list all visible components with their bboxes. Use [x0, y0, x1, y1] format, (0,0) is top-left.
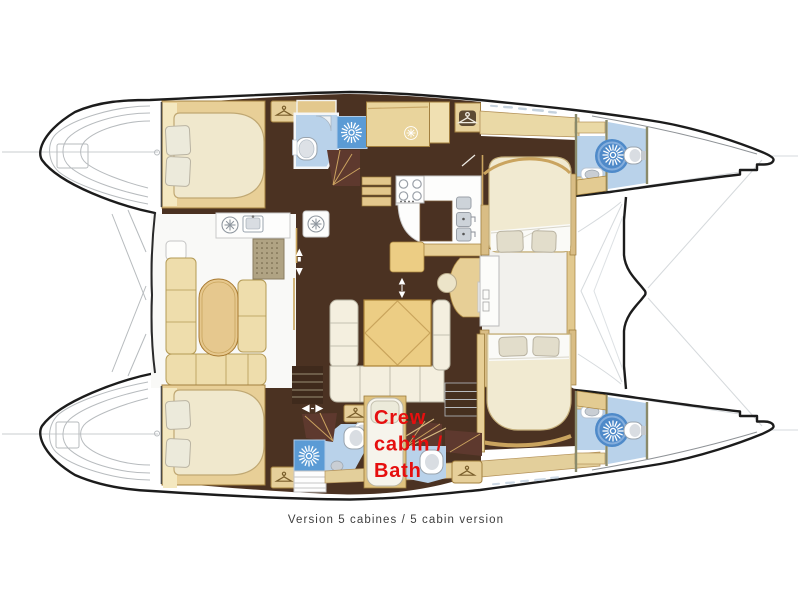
svg-text:cabin /: cabin / [374, 434, 443, 456]
svg-text:Crew: Crew [374, 407, 426, 429]
svg-text:Bath: Bath [374, 460, 422, 482]
svg-text:Version 5 cabines / 5 cabin ve: Version 5 cabines / 5 cabin version [288, 514, 504, 526]
